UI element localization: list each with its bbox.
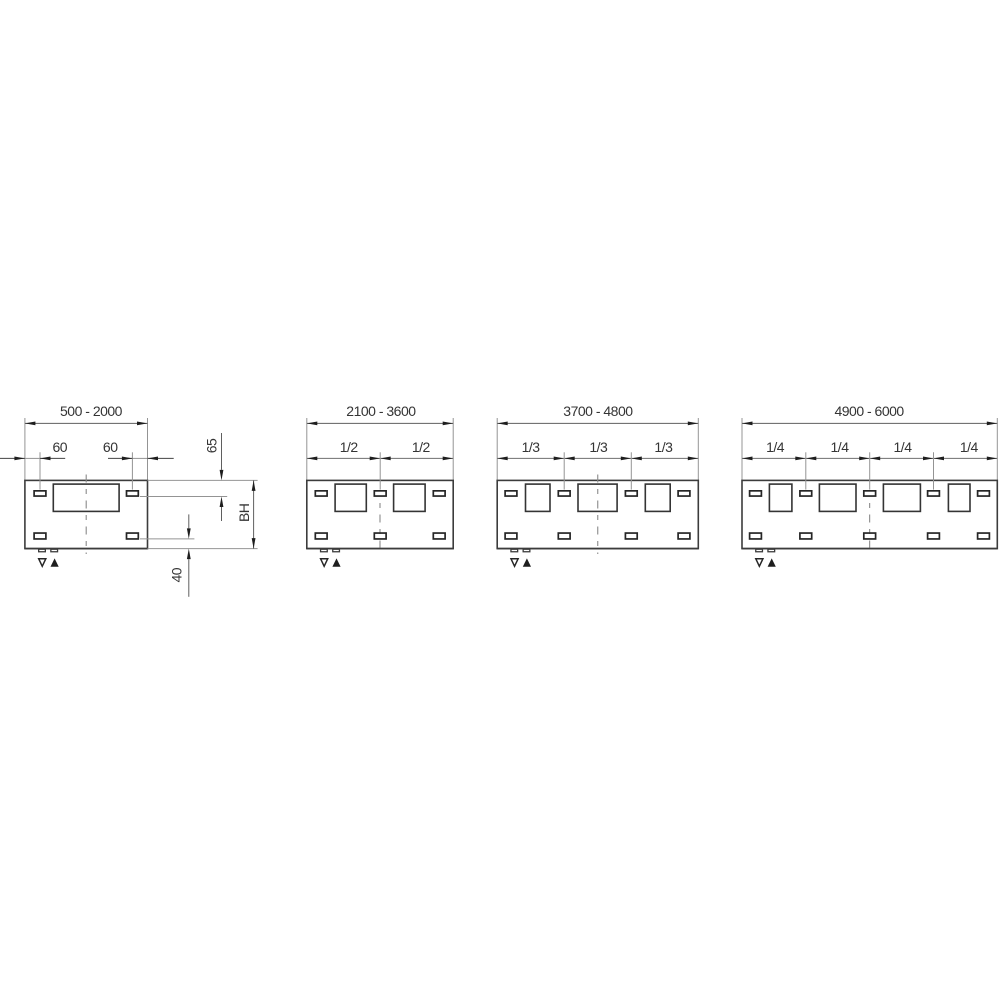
svg-text:1/3: 1/3 bbox=[589, 439, 608, 455]
svg-text:1/4: 1/4 bbox=[960, 439, 979, 455]
svg-text:BH: BH bbox=[236, 504, 252, 522]
svg-text:60: 60 bbox=[103, 439, 118, 455]
svg-text:40: 40 bbox=[169, 567, 185, 582]
svg-text:1/2: 1/2 bbox=[412, 439, 431, 455]
svg-text:1/4: 1/4 bbox=[831, 439, 850, 455]
svg-text:500 - 2000: 500 - 2000 bbox=[60, 403, 123, 419]
svg-text:65: 65 bbox=[203, 438, 219, 453]
svg-text:4900 - 6000: 4900 - 6000 bbox=[834, 403, 904, 419]
svg-text:1/3: 1/3 bbox=[522, 439, 541, 455]
svg-text:1/4: 1/4 bbox=[894, 439, 913, 455]
svg-text:1/3: 1/3 bbox=[654, 439, 673, 455]
svg-text:2100 - 3600: 2100 - 3600 bbox=[346, 403, 416, 419]
svg-text:1/2: 1/2 bbox=[340, 439, 359, 455]
svg-text:1/4: 1/4 bbox=[766, 439, 785, 455]
svg-text:60: 60 bbox=[53, 439, 68, 455]
svg-text:3700 - 4800: 3700 - 4800 bbox=[563, 403, 633, 419]
